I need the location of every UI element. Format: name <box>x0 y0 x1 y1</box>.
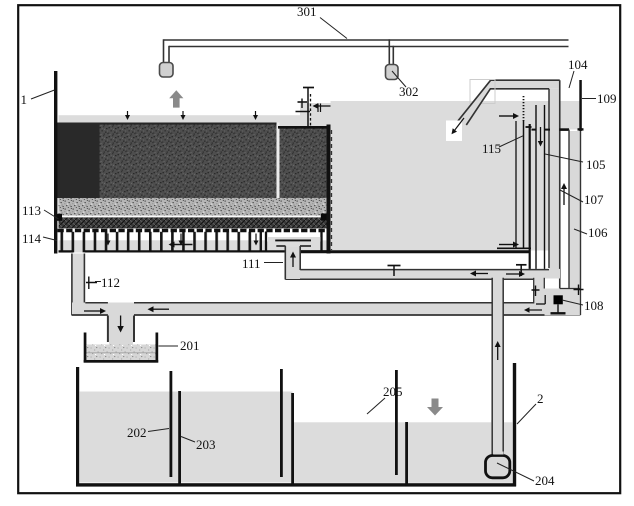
svg-text:203: 203 <box>196 437 216 452</box>
svg-text:108: 108 <box>584 298 604 313</box>
svg-text:205: 205 <box>383 384 403 399</box>
svg-text:113: 113 <box>22 203 41 218</box>
svg-text:109: 109 <box>597 91 617 106</box>
svg-text:115: 115 <box>482 141 501 156</box>
svg-text:105: 105 <box>586 157 606 172</box>
svg-text:301: 301 <box>297 4 317 19</box>
svg-text:106: 106 <box>588 225 608 240</box>
svg-text:302: 302 <box>399 84 419 99</box>
svg-text:204: 204 <box>535 473 555 488</box>
svg-text:107: 107 <box>584 192 604 207</box>
svg-text:111: 111 <box>242 256 261 271</box>
svg-text:201: 201 <box>180 338 200 353</box>
svg-text:114: 114 <box>22 231 42 246</box>
svg-text:104: 104 <box>568 57 588 72</box>
svg-text:1: 1 <box>21 92 28 107</box>
svg-text:112: 112 <box>101 275 120 290</box>
svg-text:202: 202 <box>127 425 147 440</box>
svg-text:2: 2 <box>537 391 544 406</box>
